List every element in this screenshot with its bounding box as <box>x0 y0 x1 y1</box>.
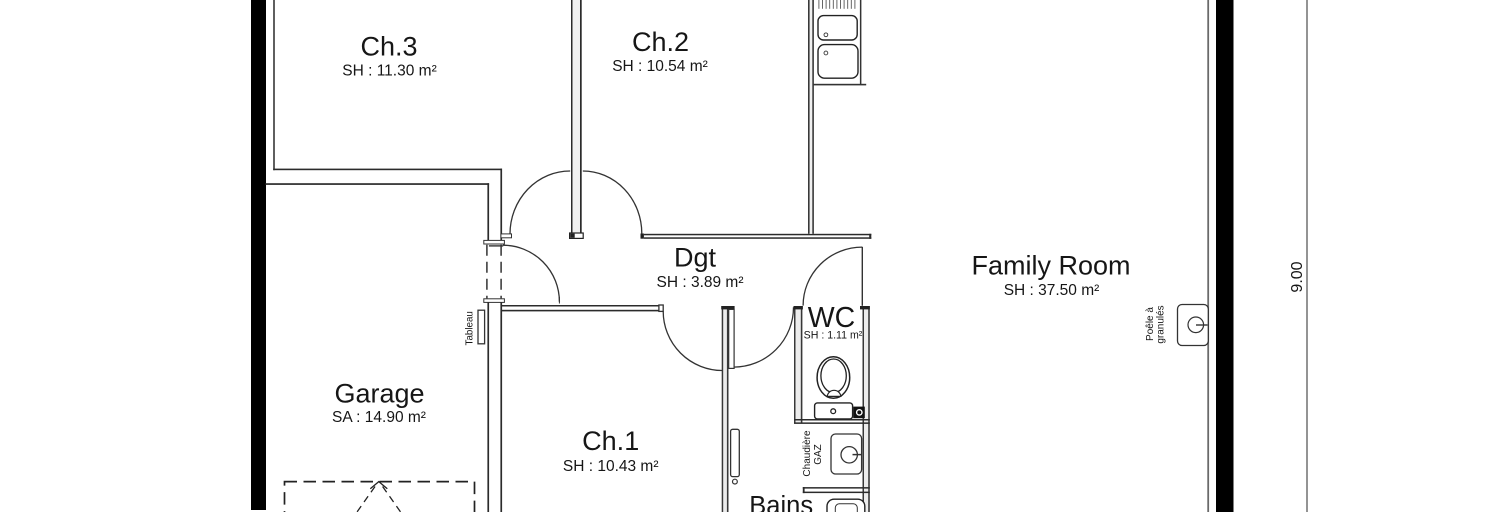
svg-text:Chaudière: Chaudière <box>802 430 813 477</box>
svg-text:Dgt: Dgt <box>674 242 717 272</box>
svg-text:Garage: Garage <box>334 379 424 409</box>
svg-text:SH : 11.30 m²: SH : 11.30 m² <box>342 63 436 80</box>
svg-text:SH : 10.43 m²: SH : 10.43 m² <box>563 458 659 475</box>
svg-text:Ch.2: Ch.2 <box>632 27 689 57</box>
svg-text:Family Room: Family Room <box>971 251 1130 281</box>
svg-text:Tableau: Tableau <box>464 311 475 345</box>
svg-text:Ch.3: Ch.3 <box>360 32 417 62</box>
svg-text:Ch.1: Ch.1 <box>582 426 639 456</box>
svg-text:9.00: 9.00 <box>1289 261 1306 292</box>
svg-text:SH : 37.50 m²: SH : 37.50 m² <box>1004 282 1100 299</box>
svg-text:granulés: granulés <box>1155 305 1166 343</box>
svg-text:Bains: Bains <box>749 492 813 512</box>
svg-text:SA : 14.90 m²: SA : 14.90 m² <box>332 409 426 426</box>
svg-text:SH : 3.89 m²: SH : 3.89 m² <box>657 274 744 291</box>
svg-text:GAZ: GAZ <box>813 444 824 465</box>
svg-text:SH : 1.11 m²: SH : 1.11 m² <box>804 330 863 342</box>
svg-text:SH : 10.54 m²: SH : 10.54 m² <box>612 58 708 75</box>
